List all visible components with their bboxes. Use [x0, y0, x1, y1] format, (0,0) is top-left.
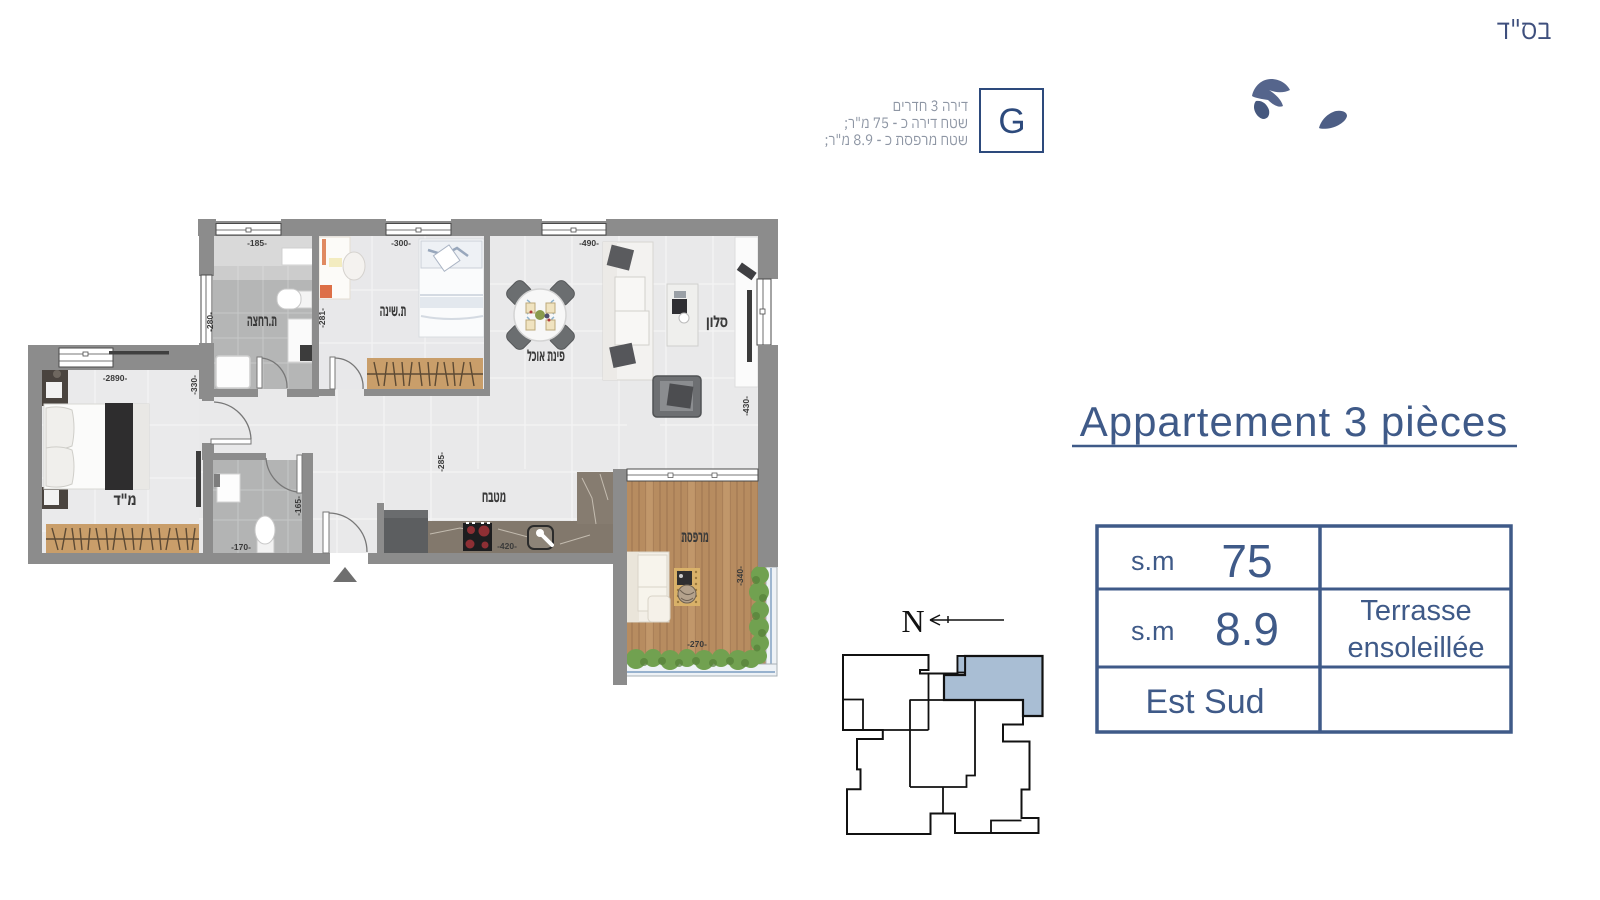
svg-text:8.9: 8.9 — [1215, 603, 1279, 655]
svg-text:N: N — [901, 603, 924, 639]
svg-text:Appartement 3 pièces: Appartement 3 pièces — [1080, 398, 1509, 445]
svg-text:-165-: -165- — [293, 496, 303, 516]
svg-text:-420-: -420- — [497, 541, 517, 551]
svg-text:-281-: -281- — [317, 308, 327, 328]
svg-text:Est Sud: Est Sud — [1145, 683, 1264, 721]
svg-text:s.m: s.m — [1131, 616, 1175, 646]
svg-text:-170-: -170- — [231, 542, 251, 552]
svg-text:-330-: -330- — [189, 375, 199, 395]
svg-text:-340-: -340- — [735, 566, 745, 586]
svg-text:-490-: -490- — [579, 238, 599, 248]
svg-text:s.m: s.m — [1131, 546, 1175, 576]
svg-text:ensoleillée: ensoleillée — [1347, 632, 1484, 664]
svg-text:Terrasse: Terrasse — [1360, 595, 1471, 627]
svg-text:-185-: -185- — [247, 238, 267, 248]
svg-text:-270-: -270- — [687, 639, 707, 649]
svg-text:75: 75 — [1221, 535, 1272, 587]
svg-text:-285-: -285- — [436, 452, 446, 472]
svg-text:G: G — [998, 102, 1025, 141]
svg-text:-2890-: -2890- — [103, 373, 128, 383]
svg-text:-430-: -430- — [741, 396, 751, 416]
svg-text:-280-: -280- — [205, 312, 215, 332]
svg-text:-300-: -300- — [391, 238, 411, 248]
